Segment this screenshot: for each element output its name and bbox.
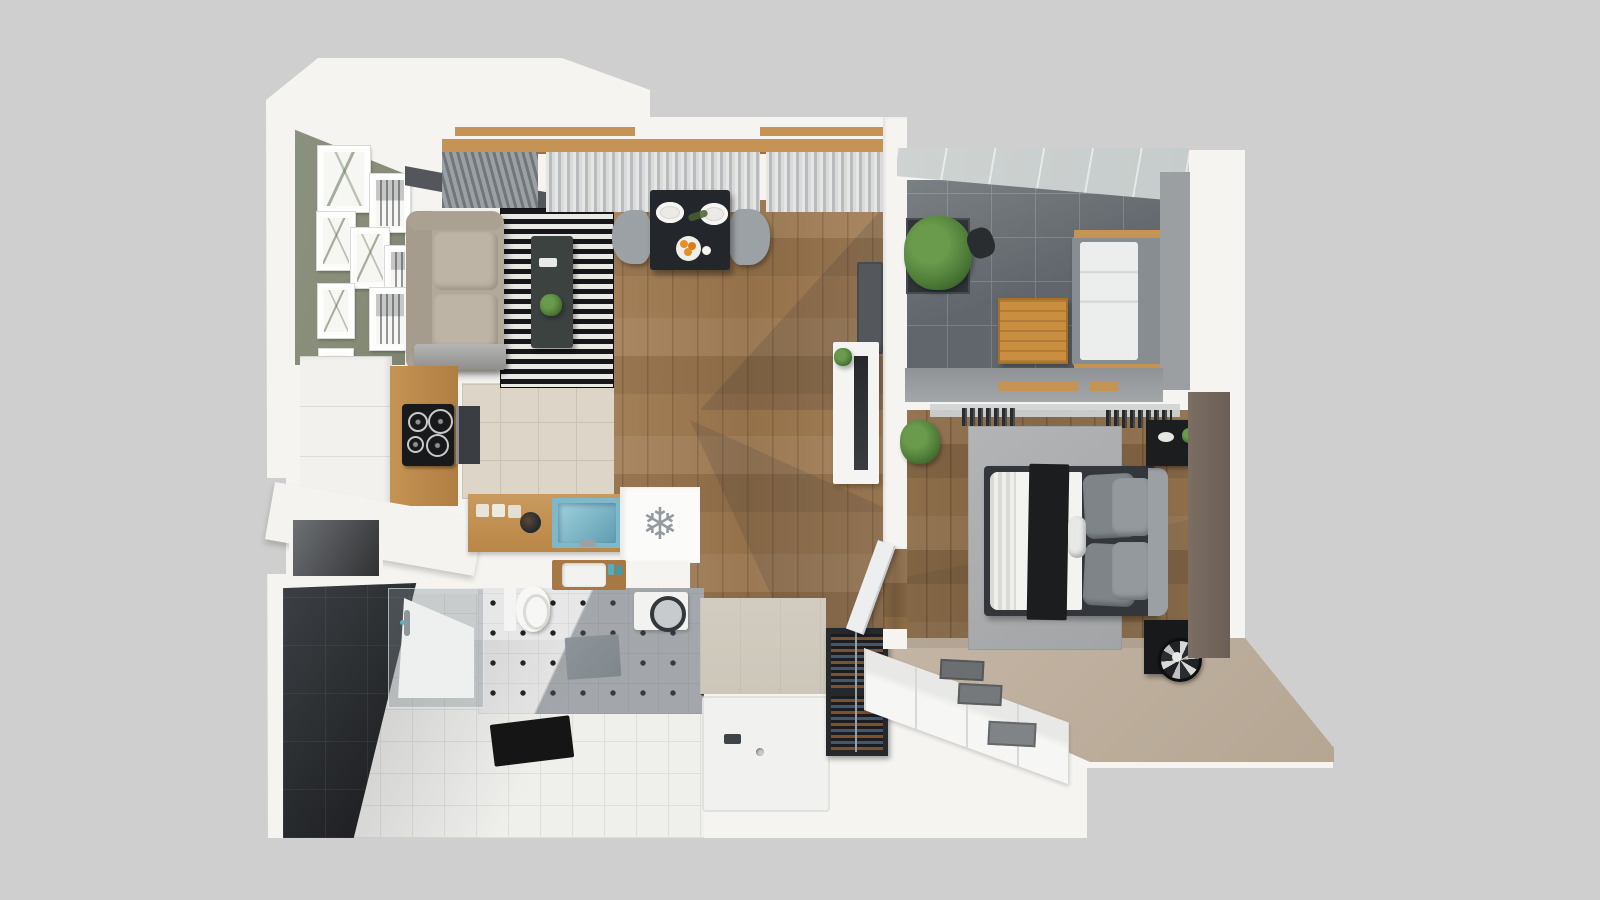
- picture-frame: [317, 212, 355, 270]
- window-head-jamb: [760, 127, 888, 136]
- sofa-cushion: [434, 232, 498, 290]
- lounger-wood-trim: [1074, 230, 1160, 238]
- sofa-armrest: [408, 212, 502, 230]
- partition-wall: [883, 629, 907, 649]
- window-sill-wood: [1090, 382, 1118, 391]
- toilet-tank: [504, 587, 516, 631]
- bedroom-plant: [900, 420, 940, 464]
- bed-throw-blanket: [1027, 464, 1070, 621]
- dinner-plate: [656, 202, 684, 223]
- fan-hub: [1172, 652, 1182, 662]
- table-tray: [539, 258, 557, 267]
- vanity-bottle: [608, 564, 614, 575]
- hanging-clothes: [962, 408, 1016, 426]
- headboard: [1148, 468, 1168, 616]
- cooktop-burner: [408, 412, 428, 432]
- nightstand-dish: [1158, 432, 1174, 442]
- shower-fixture-teal: [400, 620, 405, 625]
- bedroom-taupe-wall: [1188, 392, 1230, 658]
- window-sheer-curtain: [766, 152, 890, 212]
- counter-niche: [289, 516, 383, 580]
- table-plant: [540, 294, 562, 316]
- bed-pillow: [1112, 542, 1152, 600]
- walk-in-shower-tray: [702, 696, 830, 812]
- frame-art: [376, 180, 404, 226]
- kitchen-cabinets: [300, 356, 392, 506]
- frame-art: [376, 294, 404, 344]
- counter-jar: [476, 504, 489, 517]
- window-head-jamb: [455, 127, 635, 136]
- console-plant: [834, 348, 852, 366]
- toilet-seat-ring: [523, 594, 550, 630]
- frame-art: [357, 234, 383, 282]
- frame-art: [324, 290, 348, 332]
- wine-rack-rail: [855, 632, 857, 752]
- orange-fruit: [684, 248, 692, 256]
- dining-chair: [728, 209, 770, 265]
- cooktop-burner: [428, 409, 453, 434]
- duvet-fold: [990, 472, 1016, 610]
- vanity-basin: [562, 563, 606, 587]
- picture-frame: [370, 288, 410, 350]
- orange-fruit: [680, 240, 688, 248]
- coffee-table: [531, 236, 573, 348]
- counter-jar: [492, 504, 505, 517]
- vanity-bottle: [616, 566, 622, 575]
- floorplan-render: ❄: [0, 0, 1600, 900]
- picture-frame: [318, 284, 354, 338]
- bed-pillow: [1112, 478, 1152, 536]
- table-cup: [702, 246, 711, 255]
- picture-frame: [318, 146, 370, 212]
- freezer-snowflake-icon: ❄: [642, 503, 679, 547]
- balcony-plant: [904, 216, 972, 290]
- frame-art: [324, 152, 364, 206]
- storage-bin: [940, 659, 985, 681]
- balcony-side-wall: [1160, 172, 1190, 390]
- fridge-freezer: ❄: [620, 487, 700, 563]
- picture-frame: [370, 174, 410, 232]
- lounger-cushion: [1080, 242, 1138, 360]
- shower-tray-drain: [756, 748, 764, 756]
- sink-faucet: [580, 540, 596, 547]
- balcony-wood-table: [998, 298, 1068, 364]
- picture-frame: [351, 228, 389, 288]
- window-sill-wood: [998, 382, 1078, 391]
- utility-beige-wall: [700, 598, 826, 694]
- washer-drum: [650, 596, 686, 632]
- bath-mat: [565, 634, 622, 680]
- oven: [456, 406, 480, 464]
- sink-basin: [558, 503, 616, 543]
- sofa-cushion: [434, 294, 498, 350]
- nightstand: [1146, 420, 1194, 466]
- window-blind-slats: [442, 152, 538, 208]
- dining-chair: [612, 210, 652, 264]
- cooktop-burner: [426, 434, 449, 457]
- storage-bin: [957, 683, 1002, 706]
- bed-small-pillow: [1068, 516, 1086, 558]
- kitchen-tile-floor: [462, 383, 614, 499]
- partition-wall: [883, 117, 907, 549]
- radiator-cabinet: [857, 262, 883, 354]
- counter-bowl: [520, 512, 541, 533]
- frame-art: [323, 218, 349, 264]
- counter-jar: [508, 505, 521, 518]
- shower-tray-faucet: [724, 734, 741, 744]
- cooktop-burner: [407, 436, 424, 453]
- tv-screen: [854, 356, 868, 470]
- storage-bin: [987, 721, 1036, 747]
- frame-art: [391, 252, 405, 292]
